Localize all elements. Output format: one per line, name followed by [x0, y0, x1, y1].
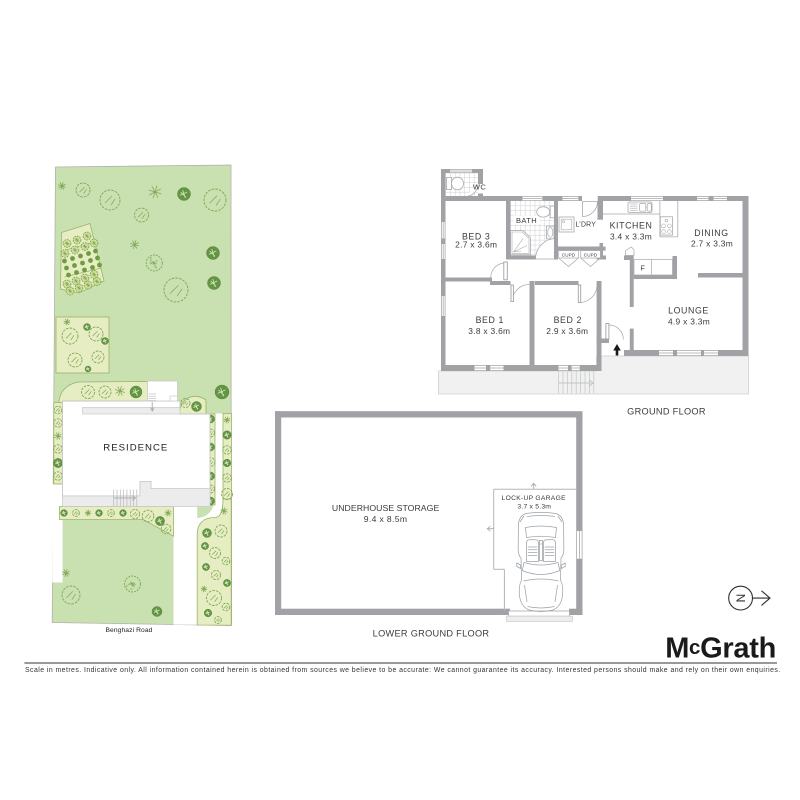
svg-text:BED 1: BED 1 — [476, 315, 504, 325]
svg-text:KITCHEN: KITCHEN — [610, 221, 653, 231]
svg-text:2.9 x 3.6m: 2.9 x 3.6m — [546, 326, 588, 336]
svg-text:DINING: DINING — [694, 228, 728, 238]
svg-text:4.9 x 3.3m: 4.9 x 3.3m — [668, 316, 710, 326]
svg-text:RESIDENCE: RESIDENCE — [103, 443, 168, 454]
svg-text:LOUNGE: LOUNGE — [668, 306, 709, 316]
svg-text:3.8 x 3.6m: 3.8 x 3.6m — [468, 326, 510, 336]
svg-text:LOCK-UP GARAGE: LOCK-UP GARAGE — [502, 495, 567, 502]
svg-text:F: F — [640, 264, 645, 273]
svg-text:9.4 x 8.5m: 9.4 x 8.5m — [364, 514, 408, 524]
svg-text:GROUND FLOOR: GROUND FLOOR — [627, 407, 706, 417]
svg-text:2.7 x 3.6m: 2.7 x 3.6m — [455, 239, 497, 249]
svg-text:CUPD: CUPD — [584, 252, 598, 257]
svg-text:BED 2: BED 2 — [554, 315, 582, 325]
svg-text:3.4 x 3.3m: 3.4 x 3.3m — [610, 231, 652, 241]
svg-text:Benghazi Road: Benghazi Road — [105, 627, 152, 634]
svg-text:WC: WC — [473, 182, 486, 191]
svg-text:CUPD: CUPD — [562, 252, 576, 257]
svg-text:BATH: BATH — [516, 216, 537, 225]
svg-text:LOWER GROUND FLOOR: LOWER GROUND FLOOR — [373, 629, 490, 639]
svg-text:2.7 x 3.3m: 2.7 x 3.3m — [691, 238, 733, 248]
svg-text:N: N — [734, 594, 748, 603]
svg-text:L’DRY: L’DRY — [575, 222, 596, 229]
svg-text:3.7 x 5.3m: 3.7 x 5.3m — [517, 503, 551, 510]
svg-text:Scale in metres. Indicative on: Scale in metres. Indicative only. All in… — [25, 667, 781, 674]
svg-text:UNDERHOUSE STORAGE: UNDERHOUSE STORAGE — [332, 503, 440, 513]
svg-text:McGrath: McGrath — [665, 633, 776, 665]
